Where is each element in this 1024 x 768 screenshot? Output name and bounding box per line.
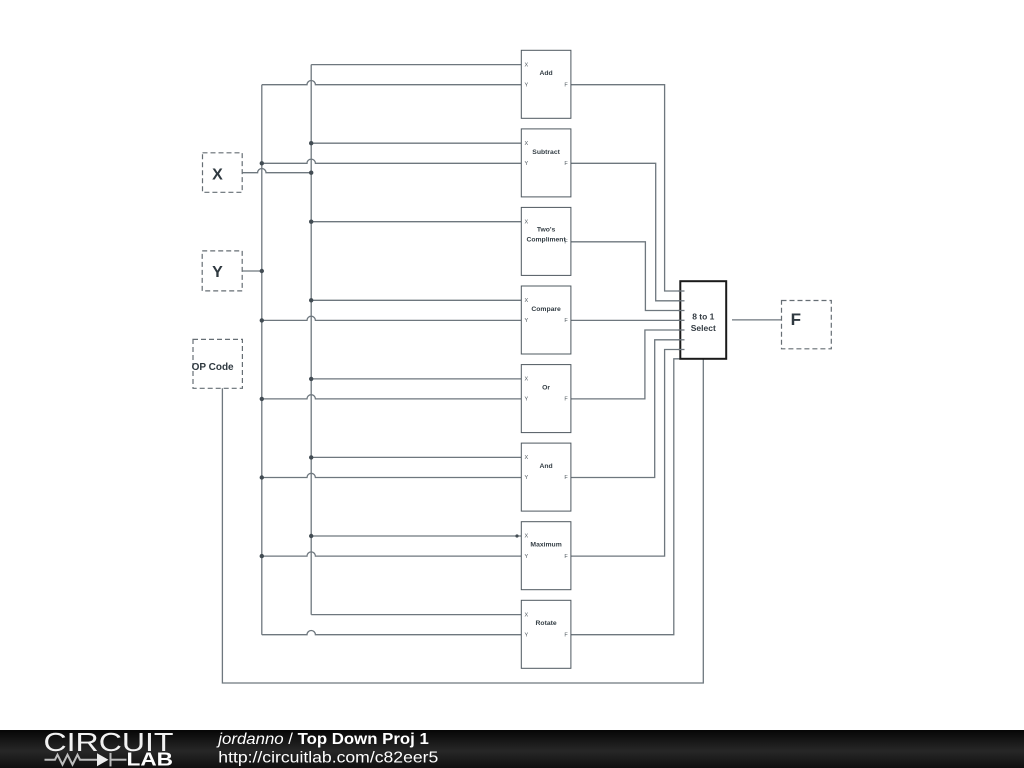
svg-text:Y: Y: [525, 161, 529, 167]
svg-text:Compare: Compare: [531, 306, 561, 313]
svg-text:Y: Y: [212, 264, 223, 281]
svg-text:Maximum: Maximum: [530, 542, 561, 549]
svg-text:Or: Or: [542, 385, 550, 392]
svg-text:8 to 1: 8 to 1: [692, 312, 714, 322]
svg-text:Y: Y: [525, 318, 529, 324]
svg-text:F: F: [791, 310, 801, 329]
svg-text:X: X: [525, 298, 529, 304]
svg-text:X: X: [525, 219, 529, 225]
svg-text:jordanno / Top Down Proj 1: jordanno / Top Down Proj 1: [216, 731, 429, 748]
svg-text:Subtract: Subtract: [532, 149, 560, 156]
svg-text:And: And: [539, 463, 552, 470]
svg-text:X: X: [212, 166, 223, 183]
svg-text:http://circuitlab.com/c82eer5: http://circuitlab.com/c82eer5: [218, 749, 438, 766]
svg-text:Two's: Two's: [537, 226, 556, 233]
svg-text:X: X: [525, 534, 529, 540]
svg-text:X: X: [525, 141, 529, 147]
svg-text:Add: Add: [539, 70, 552, 77]
svg-text:Y: Y: [525, 554, 529, 560]
svg-text:Rotate: Rotate: [536, 620, 557, 627]
svg-text:X: X: [525, 455, 529, 461]
svg-text:Y: Y: [525, 82, 529, 88]
svg-text:Y: Y: [525, 632, 529, 638]
svg-text:Y: Y: [525, 475, 529, 481]
svg-text:LAB: LAB: [127, 750, 174, 768]
svg-text:X: X: [525, 62, 529, 68]
svg-text:Y: Y: [525, 397, 529, 403]
svg-text:Select: Select: [691, 323, 716, 333]
svg-text:X: X: [525, 377, 529, 383]
svg-text:OP Code: OP Code: [192, 362, 234, 373]
svg-text:Compliment: Compliment: [526, 236, 566, 243]
svg-text:X: X: [525, 612, 529, 618]
